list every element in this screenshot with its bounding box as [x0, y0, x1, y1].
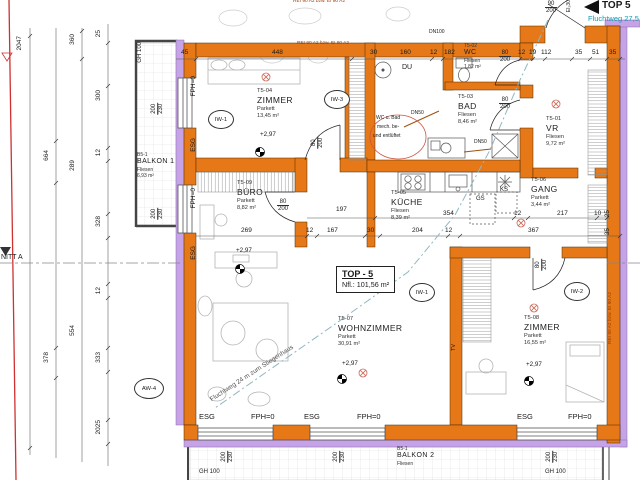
- dim-328: 328: [95, 216, 102, 227]
- dim-197: 197: [336, 206, 347, 213]
- window-size-bottom-c: 200230: [546, 451, 560, 463]
- tv-label: TV: [451, 344, 457, 351]
- glass-fph-bottom2: FPH=0: [357, 413, 381, 422]
- entry-fire-rating: EI₂30: [567, 0, 573, 12]
- structural-walls: [184, 26, 620, 443]
- fridge-label: KS: [500, 187, 508, 194]
- wall-tag-iw3: IW-3: [324, 90, 350, 109]
- dim-10: 10: [594, 210, 601, 217]
- dim-top-51: 51: [592, 49, 599, 56]
- dim-top-35: 35: [575, 49, 582, 56]
- glass-fph-left1: FPH=0: [190, 76, 197, 96]
- level-zimmer2: +2,97: [526, 361, 542, 368]
- room-label-balkon2: B5-1 BALKON 2 Fliesen: [397, 446, 434, 467]
- dim-378: 378: [43, 352, 50, 363]
- dim-top-160: 160: [400, 49, 411, 56]
- unit-net-area: Nfl.: 101,56 m²: [342, 280, 389, 289]
- dim-top-182: 182: [444, 49, 455, 56]
- dim-360: 360: [69, 34, 76, 45]
- glass-fph-bottom1: FPH=0: [251, 413, 275, 422]
- unit-title-box: TOP - 5 Nfl.: 101,56 m²: [336, 266, 395, 293]
- railing-gh100-balkon2a: GH 100: [199, 469, 220, 476]
- dim-top-45: 45: [181, 49, 188, 56]
- pipe-dn100-label: DN100: [429, 30, 445, 36]
- dim-12d: 12: [306, 227, 313, 234]
- dimension-lines: [28, 24, 625, 466]
- dim-top-19: 19: [529, 49, 536, 56]
- dim-289: 289: [69, 160, 76, 171]
- room-label-kueche: T5-05 KÜCHE Fliesen 8,39 m²: [391, 190, 423, 222]
- dim-2025: 2025: [95, 420, 102, 434]
- dim-300: 300: [95, 90, 102, 101]
- window-size-bottom-a: 200230: [221, 451, 235, 463]
- pipe-dn50-label-b: DN50: [474, 140, 487, 146]
- dim-12f: 12: [95, 149, 102, 156]
- dim-554: 554: [69, 325, 76, 336]
- dim-right-25: 25: [604, 210, 611, 217]
- dim-top-112: 112: [541, 49, 551, 56]
- floor-plan-drawing: [0, 0, 640, 480]
- room-label-gang: T5-06 GANG Parkett 3,44 m²: [531, 177, 558, 209]
- window-size-balkon1-a: 200230: [151, 103, 165, 115]
- dim-top-30: 30: [370, 49, 377, 56]
- dim-354: 354: [443, 210, 454, 217]
- dim-12e: 12: [445, 227, 452, 234]
- room-label-buero: T5-09 BÜRO Parkett 8,82 m²: [237, 180, 263, 212]
- vent-note-line2: mech. be-: [377, 125, 399, 131]
- room-label-balkon1: B5-1 BALKON 1 Fliesen 6,93 m²: [137, 152, 174, 180]
- room-label-wc: T5-02 WC Fliesen 1,82 m²: [464, 43, 481, 71]
- window-size-bottom-b: 200230: [333, 451, 347, 463]
- glass-esg-bottom3: ESG: [517, 413, 533, 422]
- dim-333: 333: [95, 352, 102, 363]
- dim-top-12b: 12: [518, 49, 525, 56]
- room-label-wohnzimmer: T5-07 WOHNZIMMER Parkett 30,91 m²: [338, 316, 402, 348]
- dim-664: 664: [43, 150, 50, 161]
- dim-top-35b: 35: [609, 49, 616, 56]
- glass-esg-bottom1: ESG: [199, 413, 215, 422]
- glass-esg-left1: ESG: [190, 138, 197, 152]
- dim-2047: 2047: [16, 36, 23, 50]
- annotation-symbols: [0, 0, 640, 480]
- wall-tag-iw1-b: IW-1: [409, 283, 435, 302]
- vent-note-line3: und entlüftet: [373, 134, 401, 140]
- door-size-zimmer2: 80200: [535, 259, 549, 271]
- glass-fph-bottom3: FPH=0: [568, 413, 592, 422]
- wall-tag-iw1: IW-1: [208, 110, 234, 129]
- door-size-zimmer1: 80200: [311, 137, 325, 149]
- dim-12c: 12: [514, 210, 521, 217]
- glass-esg-left2: ESG: [190, 246, 197, 260]
- wall-tag-iw2: IW-2: [564, 282, 590, 301]
- fire-note-right-wall: REI 90 A2 bzw. EI 90 A2: [608, 292, 614, 344]
- room-label-zimmer1: T5-04 ZIMMER Parkett 13,45 m²: [257, 88, 293, 120]
- door-size-wc: 80200: [499, 50, 511, 64]
- dishwasher-label: GS: [476, 196, 485, 203]
- dim-167: 167: [327, 227, 338, 234]
- vent-note-line1: WC u. Bad: [376, 116, 400, 122]
- unit-title: TOP - 5: [342, 269, 389, 279]
- entry-door-size: 90 200: [545, 1, 557, 15]
- dim-top-12: 12: [430, 49, 437, 56]
- dim-right-35: 35: [604, 228, 611, 235]
- room-label-vr: T5-01 VR Fliesen 9,72 m²: [546, 116, 565, 148]
- dim-top-448: 448: [272, 49, 283, 56]
- level-zimmer1: +2,97: [260, 131, 276, 138]
- level-wohnzimmer: +2,97: [342, 360, 358, 367]
- escape-route-top-label: Fluchtweg 27,5: [588, 15, 639, 24]
- pipe-dn50-label-a: DN50: [411, 111, 424, 117]
- dim-367: 367: [528, 227, 539, 234]
- dim-204: 204: [412, 227, 423, 234]
- fire-note-top-wall: REI 90 A2 bzw. EI 90 A2: [297, 41, 349, 47]
- glass-esg-bottom2: ESG: [304, 413, 320, 422]
- dim-217: 217: [557, 210, 568, 217]
- room-label-zimmer2: T5-08 ZIMMER Parkett 16,55 m²: [524, 315, 560, 347]
- dim-25: 25: [95, 30, 102, 37]
- entry-unit-label: TOP 5: [602, 0, 631, 12]
- dim-30b: 30: [367, 227, 374, 234]
- shower-label: DU: [402, 64, 412, 72]
- railing-gh100-balkon2b: GH 100: [545, 469, 566, 476]
- window-size-balkon1-b: 200230: [151, 208, 165, 220]
- room-label-bad: T5-03 BAD Fliesen 8,46 m²: [458, 94, 477, 126]
- glass-fph-left2: FPH=0: [190, 188, 197, 208]
- fire-note-top-outer: REI 90 A2 bzw. EI 90 A2: [293, 0, 345, 5]
- door-size-bad: 80200: [499, 97, 511, 111]
- railing-gh100-balkon1: GH 100: [137, 42, 144, 63]
- dim-269: 269: [241, 227, 252, 234]
- dim-12g: 12: [95, 287, 102, 294]
- wall-tag-aw4: AW-4: [134, 378, 164, 399]
- floor-plan: TOP - 5 Nfl.: 101,56 m² TOP 5 Fluchtweg …: [0, 0, 640, 480]
- door-size-buero: 80200: [277, 199, 289, 213]
- level-buero: +2,97: [236, 247, 252, 254]
- section-cut-label: NITT A: [1, 254, 23, 262]
